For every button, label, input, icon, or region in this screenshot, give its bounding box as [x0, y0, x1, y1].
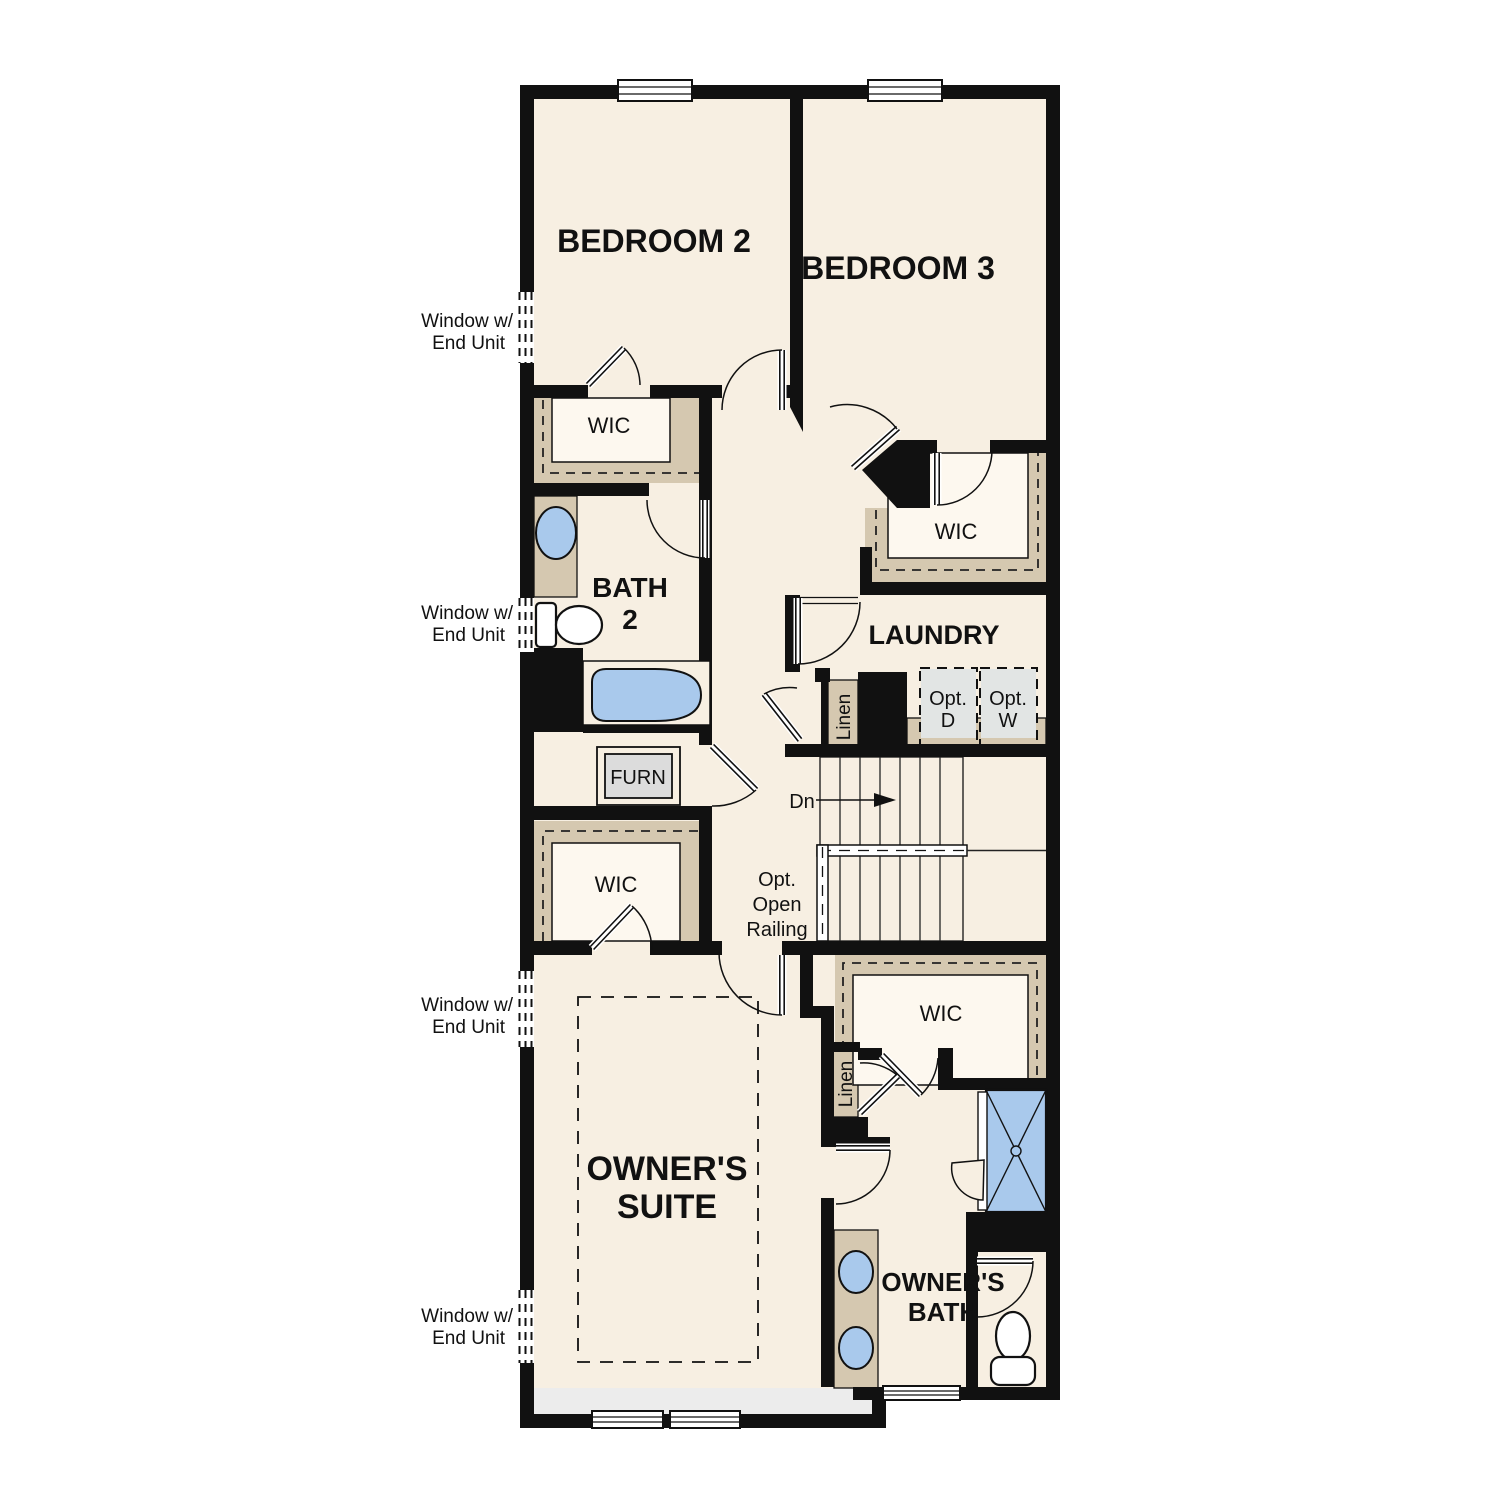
wall-owners-top-c [782, 941, 1046, 955]
wall-wic3-laundry-stub [860, 547, 872, 582]
wall-owners-wic-bottom-a [858, 1048, 882, 1060]
window-note-1-line1: Window w/ [421, 311, 514, 332]
window-note-4-line2: End Unit [432, 1328, 506, 1349]
end-unit-window-2 [517, 598, 534, 652]
window-note-2: Window w/ End Unit [421, 603, 514, 646]
bath2-tub-basin [592, 669, 701, 721]
wall-linen2-bottom [821, 1117, 868, 1147]
label-bath2-line1: BATH [592, 572, 668, 603]
owners-toilet [991, 1312, 1035, 1385]
label-owners-suite-line1: OWNER'S [586, 1150, 747, 1188]
window-note-4-line1: Window w/ [421, 1306, 514, 1327]
end-unit-window-4 [517, 1290, 534, 1363]
wall-owners-top-a [534, 941, 592, 955]
bath2-tub [583, 661, 710, 725]
owners-wic-right-shelf-top [835, 955, 1046, 975]
wall-wic2-bath2 [534, 483, 649, 496]
shower-drain [1011, 1146, 1021, 1156]
wall-owners-wic-bottom-b [950, 1078, 1046, 1090]
window-note-3-line1: Window w/ [421, 995, 514, 1016]
label-linen2: Linen [836, 1061, 857, 1108]
bath2-sink [536, 507, 576, 559]
window-note-2-line2: End Unit [432, 625, 506, 646]
bath2-toilet [536, 603, 602, 647]
window-bottom-suite-2 [670, 1411, 740, 1428]
wall-right [1046, 85, 1060, 1400]
end-unit-window-1 [517, 292, 534, 363]
label-opt-dryer-line2: D [941, 710, 955, 732]
label-opt-washer-line1: Opt. [989, 688, 1027, 710]
wall-tub-surround [534, 648, 583, 732]
wall-linen2-top [821, 1042, 860, 1052]
wall-suite-bath-divider-c [821, 1198, 834, 1387]
label-bedroom3: BEDROOM 3 [801, 250, 995, 286]
label-opt-railing-line1: Opt. [758, 869, 796, 891]
wall-wic3-laundry [860, 582, 1046, 595]
window-note-1: Window w/ End Unit [421, 311, 514, 354]
label-bedroom2: BEDROOM 2 [557, 223, 751, 259]
label-bath2-line2: 2 [622, 604, 638, 635]
wall-shower-block [966, 1212, 1053, 1252]
wall-bedroom-divider [790, 85, 803, 407]
wall-hall-divider-lower [699, 806, 712, 955]
label-opt-washer-line2: W [999, 710, 1018, 732]
label-wic-owners-right: WIC [920, 1001, 963, 1026]
label-wic-bedroom2: WIC [588, 413, 631, 438]
label-wic-bedroom3: WIC [935, 519, 978, 544]
label-stairs-down: Dn [789, 791, 815, 813]
window-note-3: Window w/ End Unit [421, 995, 514, 1038]
wall-stairs-top [785, 744, 1046, 757]
window-note-1-line2: End Unit [432, 333, 506, 354]
owners-bath-sink-1 [839, 1251, 873, 1293]
wall-bed2-closet-a [534, 385, 588, 398]
wall-wic3-top-b [990, 440, 1046, 453]
label-wic-owners-left: WIC [595, 872, 638, 897]
window-bottom-owners-bath [883, 1386, 960, 1400]
window-note-3-line2: End Unit [432, 1017, 506, 1038]
window-note-4: Window w/ End Unit [421, 1306, 514, 1349]
wall-suite-bath-divider-b [821, 1016, 834, 1117]
floor-plan-page: BEDROOM 2 BEDROOM 3 BATH 2 LAUNDRY OWNER… [0, 0, 1500, 1500]
window-top-bedroom3 [868, 80, 942, 101]
wall-furn-bottom [534, 806, 699, 820]
label-opt-dryer-line1: Opt. [929, 688, 967, 710]
wall-left [520, 85, 534, 1428]
label-furnace: FURN [610, 767, 666, 789]
label-opt-railing-line2: Open [753, 894, 802, 916]
wic3-shelf-bottom [865, 558, 1046, 582]
end-unit-window-3 [517, 971, 534, 1047]
wall-linen1-left [821, 676, 828, 748]
wic3-shelf-right [1028, 453, 1046, 558]
label-laundry: LAUNDRY [869, 620, 1000, 650]
wall-laundry-chase [858, 672, 907, 756]
owners-bath-sink-2 [839, 1327, 873, 1369]
wall-owners-top-b [650, 941, 722, 955]
floor-plan-drawing: BEDROOM 2 BEDROOM 3 BATH 2 LAUNDRY OWNER… [0, 0, 1500, 1500]
label-owners-suite-line2: SUITE [617, 1188, 717, 1226]
label-owners-bath-line2: BATH [908, 1297, 978, 1327]
window-note-2-line1: Window w/ [421, 603, 514, 624]
label-owners-bath-line1: OWNER'S [881, 1267, 1004, 1297]
owners-wic-right-shelf-left [835, 975, 853, 1048]
label-opt-railing-line3: Railing [746, 919, 807, 941]
window-bottom-suite-1 [592, 1411, 663, 1428]
label-linen1: Linen [834, 694, 855, 741]
window-top-bedroom2 [618, 80, 692, 101]
